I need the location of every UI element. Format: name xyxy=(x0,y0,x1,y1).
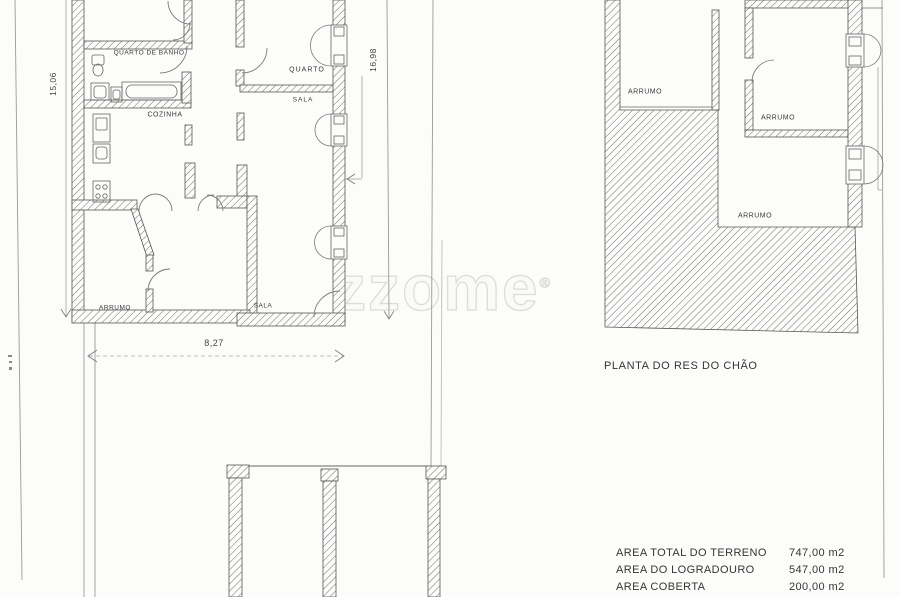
room-label-arrumo-left: ARRUMO xyxy=(99,305,131,312)
room-label-arrumo-1: ARRUMO xyxy=(628,89,662,96)
area-row-value: 200,00 m2 xyxy=(789,579,845,596)
room-label-quarto-de-banho: QUARTO DE BANHO xyxy=(114,50,185,57)
area-row: AREA COBERTA 200,00 m2 xyxy=(616,579,891,596)
right-plan-walls xyxy=(605,0,862,333)
area-row-value: 747,00 m2 xyxy=(789,545,845,562)
room-label-quarto: QUARTO xyxy=(289,67,325,74)
area-row-label: AREA COBERTA xyxy=(616,579,789,596)
area-row: AREA DO LOGRADOURO 547,00 m2 xyxy=(616,562,891,579)
garage-plan xyxy=(227,465,446,597)
room-label-sala-upper: SALA xyxy=(293,97,314,104)
floor-plan-scan: zzome® xyxy=(0,0,900,597)
area-row-label: AREA TOTAL DO TERRENO xyxy=(616,545,789,562)
dimension-label-height-right: 16,98 xyxy=(368,48,378,72)
bathroom-fixtures xyxy=(91,55,181,102)
area-row-label: AREA DO LOGRADOURO xyxy=(616,562,789,579)
room-label-sala-lower: SALA xyxy=(254,303,273,310)
room-label-arrumo-3: ARRUMO xyxy=(738,213,772,220)
dimension-label-width-bottom: 8,27 xyxy=(204,338,224,348)
area-table: AREA TOTAL DO TERRENO 747,00 m2 AREA DO … xyxy=(616,545,891,596)
room-label-cozinha: COZINHA xyxy=(148,112,183,119)
plan-title: PLANTA DO RES DO CHÃO xyxy=(604,360,758,372)
room-label-arrumo-2: ARRUMO xyxy=(761,115,795,122)
area-row-value: 547,00 m2 xyxy=(789,562,845,579)
dimension-label-height-left: 15,06 xyxy=(48,72,58,96)
plan-geometry xyxy=(0,0,900,597)
kitchen-fixtures xyxy=(93,114,110,202)
area-row: AREA TOTAL DO TERRENO 747,00 m2 xyxy=(616,545,891,562)
